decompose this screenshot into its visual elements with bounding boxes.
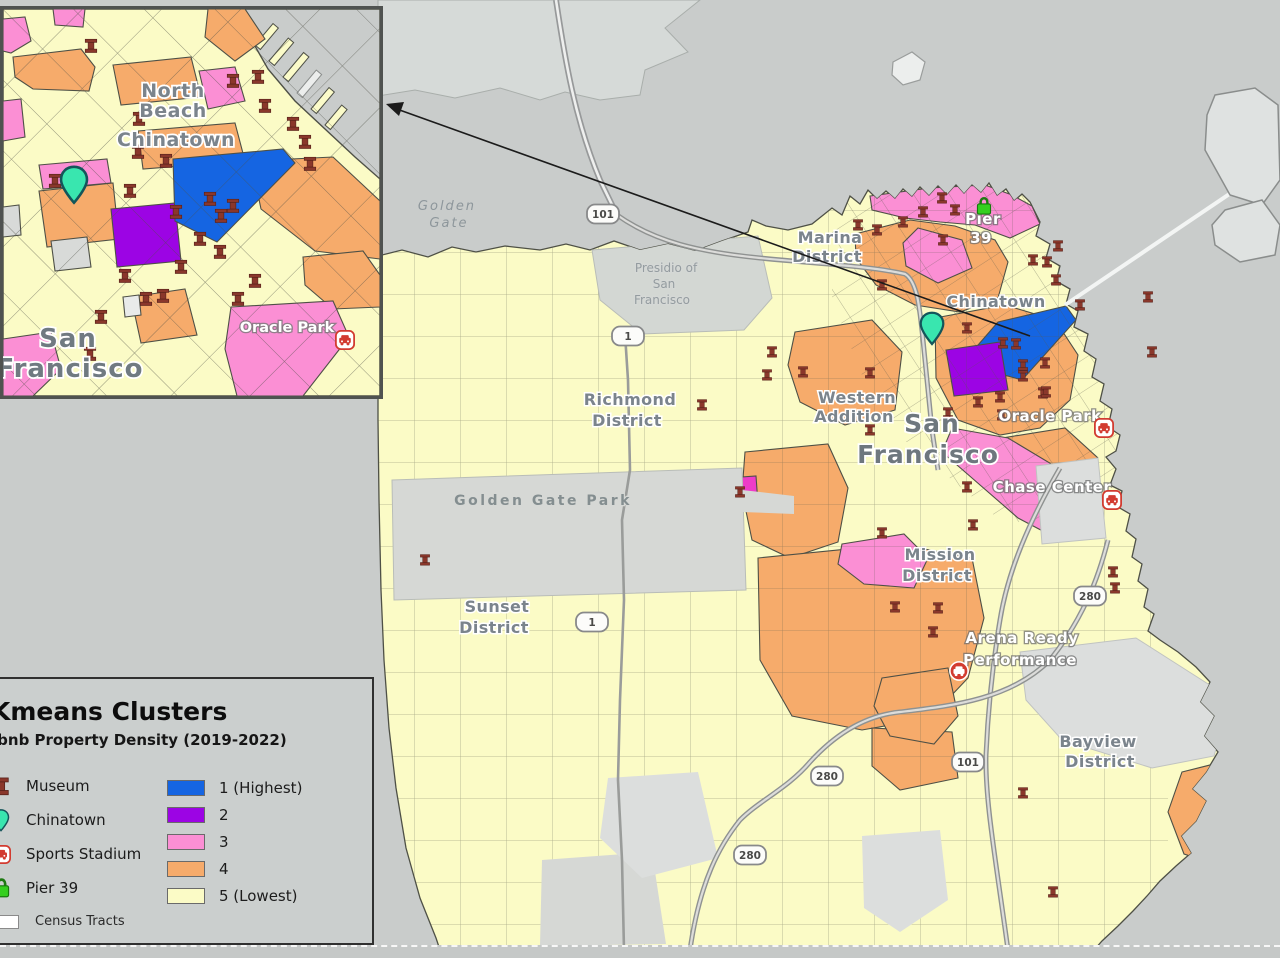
svg-text:101: 101 — [592, 209, 614, 221]
map-label: Mission — [904, 545, 975, 564]
legend-marker-label: Sports Stadium — [26, 845, 141, 863]
census-tract-swatch — [0, 915, 19, 929]
stadium-icon — [336, 331, 354, 349]
legend-cluster-1: 1 (Highest) — [167, 779, 302, 796]
highway-shield: 280 — [811, 767, 843, 786]
legend-marker-pier39: Pier 39 — [0, 876, 78, 900]
inset-map-panel: NorthBeachChinatownSanFranciscoOracle Pa… — [0, 6, 383, 399]
legend-cluster-4: 4 — [167, 860, 229, 877]
map-label: Francisco — [634, 293, 690, 307]
cluster-swatch — [167, 807, 205, 823]
map-label: Golden Gate Park — [454, 493, 632, 509]
museum-icon — [0, 774, 12, 798]
highway-shield: 101 — [587, 205, 619, 224]
highway-shield: 1 — [576, 613, 608, 632]
map-label: Chinatown — [946, 292, 1045, 311]
legend-panel: Kmeans Clusters Airbnb Property Density … — [0, 677, 374, 945]
map-label: Beach — [139, 100, 206, 122]
map-label: 39 — [970, 229, 992, 247]
map-label: Sunset — [465, 597, 530, 616]
cluster-swatch — [167, 888, 205, 904]
legend-census-tracts: Census Tracts — [0, 914, 125, 929]
map-label: Gate — [429, 216, 468, 231]
legend-subtitle: Airbnb Property Density (2019-2022) — [0, 731, 287, 749]
highway-shield: 280 — [1074, 587, 1106, 606]
highway-shield: 101 — [952, 753, 984, 772]
legend-marker-sports-stadium: Sports Stadium — [0, 842, 141, 866]
stadium-red-icon — [950, 662, 968, 680]
map-label: San — [653, 277, 676, 291]
cluster-swatch — [167, 834, 205, 850]
map-label: Chase Center — [993, 478, 1112, 496]
svg-text:280: 280 — [739, 850, 761, 862]
legend-marker-chinatown: Chinatown — [0, 808, 106, 832]
map-label: Bayview — [1059, 732, 1136, 751]
map-label: Marina — [798, 228, 863, 247]
map-label: Performance — [963, 651, 1077, 669]
map-label: Oracle Park — [240, 320, 335, 336]
golden-gate-park-area — [392, 468, 746, 600]
map-label: Golden — [418, 199, 476, 214]
map-label: Chinatown — [117, 129, 235, 151]
map-label: District — [592, 411, 662, 430]
legend-cluster-5: 5 (Lowest) — [167, 887, 297, 904]
stadium-icon — [0, 842, 12, 866]
highway-shield: 1 — [612, 327, 644, 346]
cluster-swatch — [167, 780, 205, 796]
map-label: Arena Ready — [965, 629, 1078, 647]
legend-marker-label: Museum — [26, 777, 90, 795]
map-label: Addition — [814, 407, 894, 426]
inset-map: NorthBeachChinatownSanFranciscoOracle Pa… — [3, 9, 380, 396]
legend-marker-label: Pier 39 — [26, 879, 78, 897]
svg-text:280: 280 — [1079, 591, 1101, 603]
map-label: District — [902, 566, 972, 585]
stadium-icon — [1095, 419, 1113, 437]
chinatown-pin-icon — [0, 808, 12, 832]
svg-text:1: 1 — [624, 331, 631, 343]
legend-marker-label: Chinatown — [26, 811, 106, 829]
page-extent-dashed-border — [0, 945, 1280, 958]
map-label: San — [39, 324, 97, 354]
map-label: Richmond — [584, 390, 676, 409]
legend-title: Kmeans Clusters — [0, 697, 227, 726]
map-label: Presidio of — [635, 261, 698, 275]
map-layout-page: 10111280101280280 GoldenGatePresidio ofS… — [0, 0, 1280, 958]
map-label: District — [1065, 752, 1135, 771]
pier39-lock-icon — [0, 876, 12, 900]
map-label: North — [141, 80, 204, 102]
cluster-swatch — [167, 861, 205, 877]
legend-cluster-2: 2 — [167, 806, 229, 823]
legend-marker-museum: Museum — [0, 774, 90, 798]
map-label: Western — [818, 388, 896, 407]
map-label: District — [459, 618, 529, 637]
highway-shield: 280 — [734, 846, 766, 865]
legend-cluster-3: 3 — [167, 833, 229, 850]
stadium-icon — [1103, 491, 1121, 509]
map-label: San — [904, 409, 960, 438]
map-label: Oracle Park — [998, 407, 1102, 425]
svg-text:101: 101 — [957, 757, 979, 769]
svg-text:1: 1 — [588, 617, 595, 629]
svg-text:280: 280 — [816, 771, 838, 783]
map-label: Francisco — [3, 354, 144, 384]
map-label: Francisco — [857, 440, 999, 469]
